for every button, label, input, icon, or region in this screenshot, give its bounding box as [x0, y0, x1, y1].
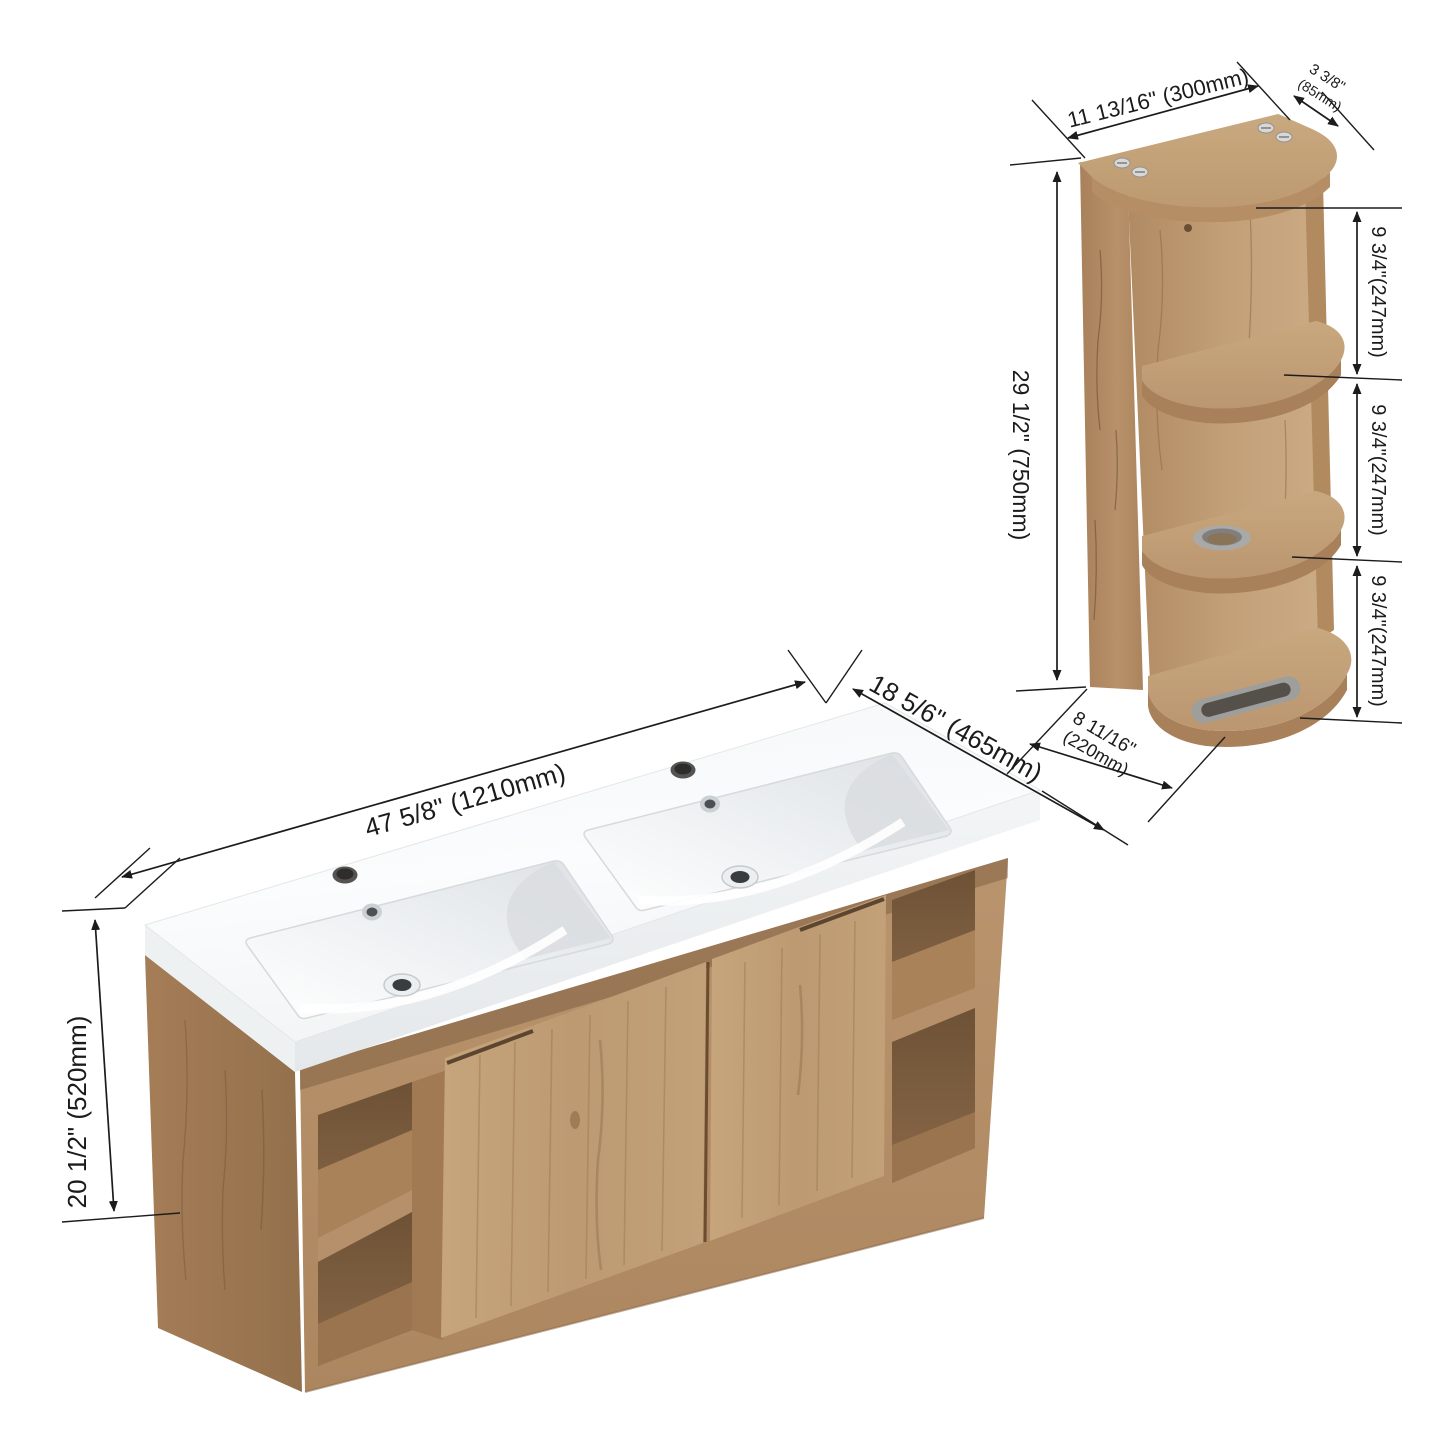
- cup-holder-ring: [1193, 526, 1251, 551]
- dim-cabinet-width-label: 11 13/16" (300mm): [1065, 63, 1251, 132]
- side-cabinet-illustration: [1078, 114, 1351, 747]
- ext-line: [125, 858, 180, 908]
- dim-shelf-gap-3-label: 9 3/4"(247mm): [1367, 575, 1389, 707]
- dim-vanity-height-line: [95, 920, 114, 1211]
- ext-line: [95, 848, 150, 898]
- shelf-pin-hole: [1184, 224, 1192, 232]
- ext-line: [1148, 737, 1225, 822]
- dim-vanity-height-label: 20 1/2" (520mm): [62, 1016, 92, 1209]
- dim-cabinet-height-label: 29 1/2" (750mm): [1008, 370, 1034, 541]
- ext-line: [62, 908, 125, 911]
- wood-knot: [570, 1111, 580, 1129]
- dim-shelf-gap-1-label: 9 3/4"(247mm): [1367, 226, 1389, 358]
- vanity-illustration: [145, 703, 1040, 1392]
- ext-line: [1016, 687, 1086, 691]
- diagram-canvas: 11 13/16" (300mm) 3 3/8" (85mm) 29 1/2" …: [0, 0, 1445, 1445]
- product-dimension-diagram: 11 13/16" (300mm) 3 3/8" (85mm) 29 1/2" …: [0, 0, 1445, 1445]
- ext-line: [826, 650, 862, 703]
- dim-shelf-gap-2-label: 9 3/4"(247mm): [1367, 404, 1389, 536]
- ext-line: [1010, 158, 1081, 165]
- ext-line: [788, 650, 826, 703]
- ext-line: [1042, 791, 1128, 845]
